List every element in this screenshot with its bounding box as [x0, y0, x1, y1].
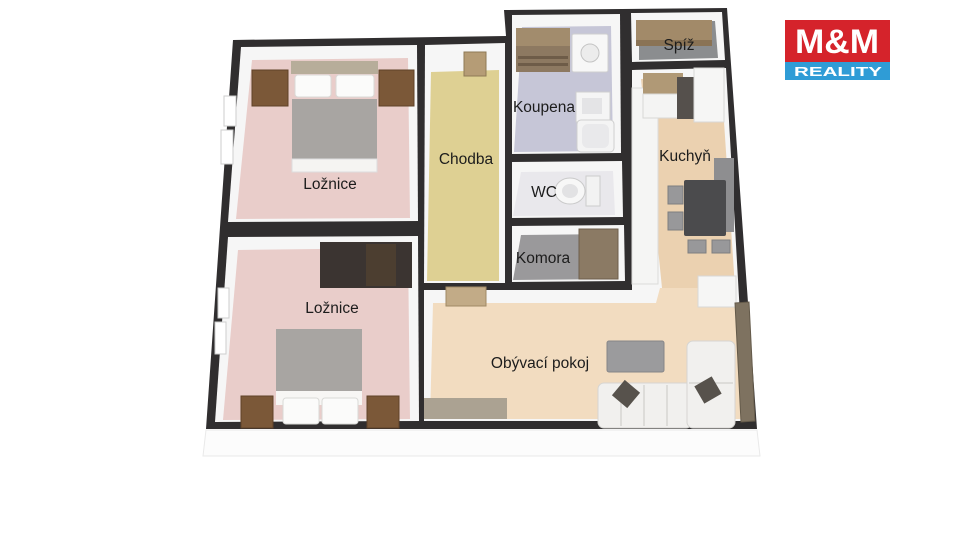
window-icon — [215, 322, 226, 354]
bathroom-label: Koupena — [513, 99, 575, 116]
toilet-bowl-inner — [562, 184, 578, 198]
hallway-label: Chodba — [439, 151, 494, 168]
bed-foot-sheet — [292, 159, 377, 172]
bed-pillow — [283, 398, 319, 424]
bed-pillow — [336, 75, 374, 97]
tv-cabinet — [698, 276, 736, 307]
dining-chair — [688, 240, 706, 253]
bed-headboard — [291, 61, 378, 74]
bed-pillow — [295, 75, 331, 97]
shelf-slat — [518, 56, 568, 59]
oven — [677, 77, 694, 119]
bathroom-shelf-top — [516, 28, 570, 46]
kitchen-corner-counter — [694, 68, 724, 122]
closet-cabinet — [579, 229, 618, 279]
window-icon — [221, 130, 233, 164]
wc-label: WC — [531, 184, 557, 201]
agency-logo: M&M REALITY — [785, 20, 890, 80]
wardrobe-door — [366, 244, 396, 286]
dining-chair — [712, 240, 730, 253]
bedroom-1-label: Ložnice — [303, 176, 356, 193]
shelf-slat — [518, 63, 568, 66]
window-icon — [218, 288, 229, 318]
logo-bottom-text: REALITY — [794, 64, 882, 79]
logo-top-text: M&M — [795, 23, 879, 61]
dining-table — [684, 180, 726, 236]
wc-furniture — [555, 176, 600, 206]
sink-basin — [582, 98, 602, 114]
bed-blanket — [276, 329, 362, 391]
floor-plan-canvas: Ložnice Ložnice Chodba Koupena WC Komora… — [0, 0, 960, 540]
kitchen-label: Kuchyň — [659, 148, 711, 165]
coffee-table — [607, 341, 664, 372]
hallway-door — [464, 52, 486, 76]
rug — [424, 398, 507, 419]
closet-label: Komora — [516, 250, 571, 267]
nightstand — [241, 396, 273, 428]
hallway-floor — [427, 70, 499, 281]
nightstand — [367, 396, 399, 428]
bed-pillow — [322, 398, 358, 424]
dining-chair — [668, 186, 683, 204]
toilet-tank — [586, 176, 600, 206]
window-icon — [224, 96, 236, 126]
outer-wall-face — [203, 430, 760, 456]
bedroom-2-label: Ložnice — [305, 300, 358, 317]
living-room-label: Obývací pokoj — [491, 355, 589, 372]
sideboard — [446, 287, 486, 306]
nightstand — [379, 70, 414, 106]
washer-door-icon — [581, 44, 599, 62]
dining-chair — [668, 212, 683, 230]
bathtub-inner — [582, 124, 609, 148]
nightstand — [252, 70, 288, 106]
pantry-label: Spíž — [663, 37, 694, 54]
bed-blanket — [292, 99, 377, 159]
